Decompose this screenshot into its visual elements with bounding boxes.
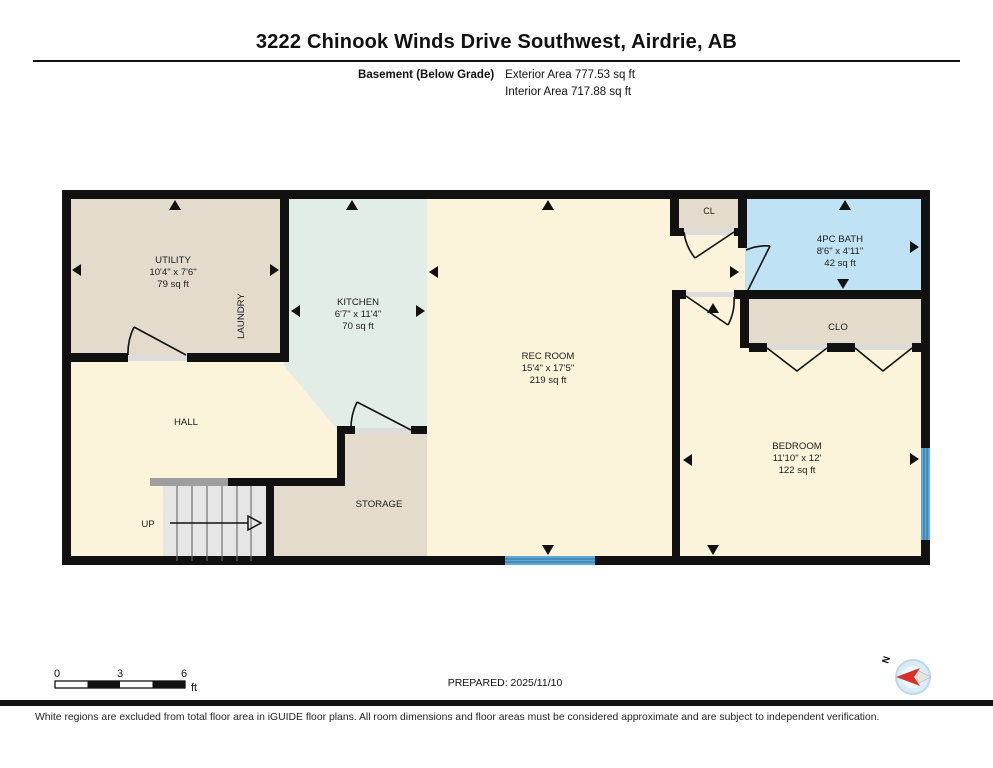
utility-bottom-wall-left: [66, 353, 128, 362]
disclaimer-text: White regions are excluded from total fl…: [35, 712, 973, 723]
kitchen-label: KITCHEN: [337, 297, 379, 308]
laundry-label: LAUNDRY: [236, 293, 247, 339]
utility-label: UTILITY: [155, 255, 191, 266]
scale-mid-label: 3: [117, 668, 123, 680]
scale-bar: 0 3 6 ft: [54, 668, 197, 694]
recroom-bedroom-wall: [672, 290, 680, 561]
bath-label: 4PC BATH: [817, 234, 863, 245]
utility-area: 79 sq ft: [157, 279, 189, 290]
kitchen-dims: 6'7" x 11'4": [335, 309, 382, 320]
bath-area: 42 sq ft: [824, 258, 856, 269]
cl-label: CL: [703, 206, 715, 216]
cl-door-threshold: [684, 230, 734, 235]
scale-unit-label: ft: [191, 682, 197, 694]
outer-wall-top: [62, 190, 930, 199]
bedroom-dims: 11'10" x 12': [773, 453, 822, 464]
clo-label: CLO: [828, 322, 848, 333]
cl-bottom-wall-left: [670, 228, 684, 236]
utility-dims: 10'4" x 7'6": [149, 267, 196, 278]
bedroom-top-wall-left: [672, 290, 686, 299]
scale-bar-segment: [88, 681, 121, 688]
room-floors: [66, 194, 926, 561]
right-window: [921, 448, 930, 540]
utility-door-threshold: [128, 355, 187, 361]
recroom-area: 219 sq ft: [530, 375, 567, 386]
clo-opening-left-threshold: [767, 345, 827, 350]
floorplan-page: 3222 Chinook Winds Drive Southwest, Aird…: [0, 0, 993, 768]
clo-bottom-wall-left: [749, 343, 767, 352]
bath-dims: 8'6" x 4'11": [817, 246, 864, 257]
storage-door-threshold: [355, 428, 411, 433]
stairs-railing: [150, 478, 228, 486]
clo-left-wall: [740, 295, 749, 348]
scale-start-label: 0: [54, 668, 60, 680]
storage-top-wall-right: [411, 426, 427, 434]
storage-left-wall: [337, 426, 345, 486]
compass: N: [880, 655, 931, 694]
utility-right-wall: [280, 194, 289, 362]
bath-door-stub-wall: [738, 228, 747, 248]
utility-bottom-wall-right: [187, 353, 285, 362]
clo-opening-right-threshold: [855, 345, 912, 350]
bedroom-door-threshold: [686, 292, 734, 297]
stairs-top-wall: [228, 478, 268, 486]
recroom-label: REC ROOM: [522, 351, 575, 362]
bottom-window: [505, 556, 595, 565]
kitchen-area: 70 sq ft: [342, 321, 374, 332]
floorplan-drawing: UTILITY 10'4" x 7'6" 79 sq ft LAUNDRY KI…: [0, 0, 993, 768]
stairs-up-label: UP: [141, 519, 154, 530]
recroom-dims: 15'4" x 17'5": [522, 363, 575, 374]
prepared-date: PREPARED: 2025/11/10: [448, 677, 563, 689]
compass-north-label: N: [880, 655, 893, 665]
outer-wall-left: [62, 190, 71, 565]
footer-divider: [0, 700, 993, 706]
hall-storage-wall: [266, 478, 345, 486]
stairs-storage-wall: [266, 478, 274, 565]
bedroom-label: BEDROOM: [772, 441, 822, 452]
clo-bottom-wall-middle: [827, 343, 855, 352]
scale-end-label: 6: [181, 668, 187, 680]
clo-bottom-wall-right: [912, 343, 926, 352]
storage-top-wall-left: [337, 426, 355, 434]
hall-label: HALL: [174, 417, 199, 428]
bedroom-area: 122 sq ft: [779, 465, 816, 476]
storage-label: STORAGE: [356, 499, 403, 510]
scale-bar-segment: [153, 681, 186, 688]
bath-bottom-wall: [734, 290, 930, 299]
